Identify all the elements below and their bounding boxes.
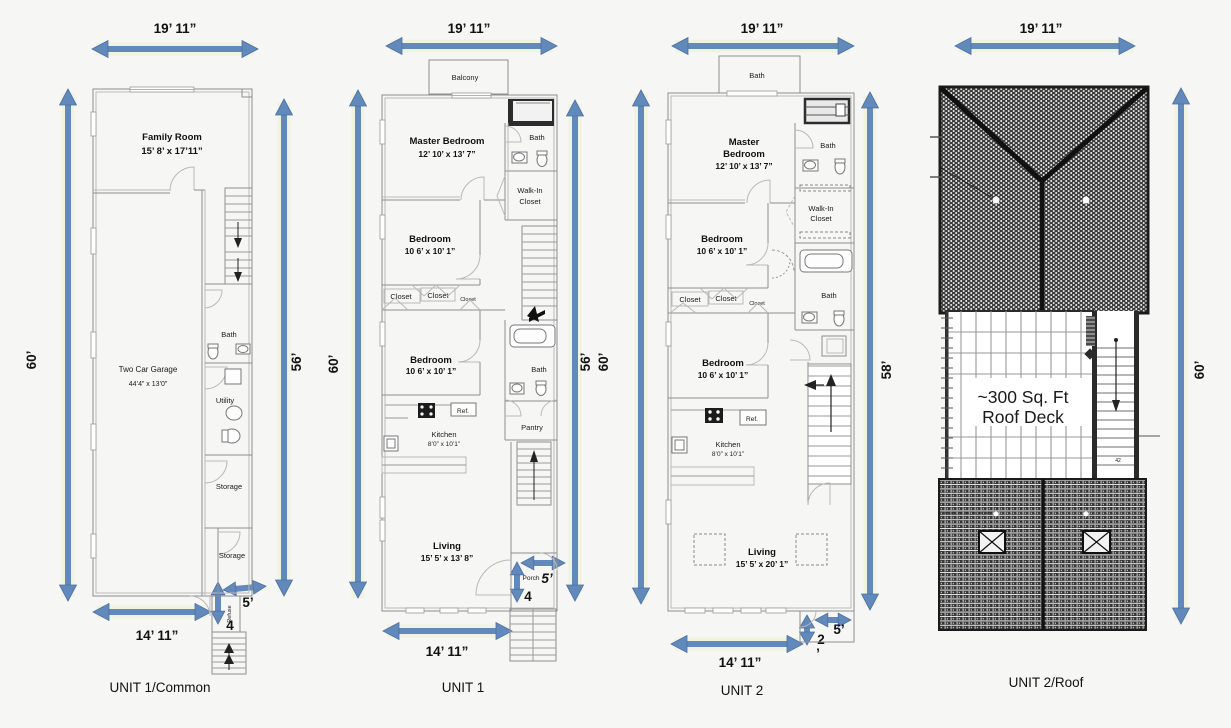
svg-text:60’: 60’ (596, 353, 611, 372)
svg-text:12’ 10’ x 13’ 7”: 12’ 10’ x 13’ 7” (418, 149, 475, 159)
svg-text:Bedroom: Bedroom (701, 234, 743, 245)
svg-text:5’: 5’ (242, 595, 253, 610)
svg-text:58’: 58’ (879, 361, 894, 380)
svg-text:Closet: Closet (427, 291, 449, 300)
svg-text:Living: Living (433, 541, 461, 552)
svg-text:Kitchen: Kitchen (715, 440, 740, 449)
svg-text:10 6’ x 10’ 1”: 10 6’ x 10’ 1” (697, 246, 748, 256)
svg-text:Bedroom: Bedroom (410, 355, 452, 366)
svg-text:19’ 11”: 19’ 11” (448, 21, 491, 36)
svg-text:Utility: Utility (216, 396, 235, 405)
svg-text:Living: Living (748, 547, 776, 558)
svg-text:Porch: Porch (523, 575, 540, 582)
svg-text:14’ 11”: 14’ 11” (426, 644, 469, 659)
svg-text:12’ 10’ x 13’ 7”: 12’ 10’ x 13’ 7” (715, 161, 772, 171)
svg-text:4: 4 (524, 589, 532, 604)
svg-text:15’ 5’ x 13’ 8”: 15’ 5’ x 13’ 8” (421, 553, 473, 563)
svg-text:Refuse: Refuse (227, 605, 233, 622)
svg-text:2: 2 (817, 632, 825, 647)
svg-text:Storage: Storage (219, 551, 245, 560)
svg-text:19’ 11”: 19’ 11” (1020, 21, 1063, 36)
svg-text:14’ 11”: 14’ 11” (719, 655, 762, 670)
svg-text:56’: 56’ (289, 353, 304, 372)
svg-text:Bath: Bath (531, 365, 546, 374)
svg-text:UNIT 2: UNIT 2 (721, 683, 764, 698)
svg-text:44’4” x 13’0”: 44’4” x 13’0” (129, 381, 168, 388)
svg-text:8’0” x 10’1”: 8’0” x 10’1” (428, 441, 460, 448)
svg-text:Family Room: Family Room (142, 132, 202, 143)
svg-text:Bath: Bath (749, 71, 764, 80)
svg-text:Storage: Storage (216, 482, 242, 491)
svg-text:19’ 11”: 19’ 11” (741, 21, 784, 36)
svg-text:’: ’ (816, 646, 820, 661)
svg-text:Master Bedroom: Master Bedroom (410, 136, 485, 147)
svg-text:Walk-In: Walk-In (808, 204, 833, 213)
svg-text:Bath: Bath (821, 291, 836, 300)
svg-text:Balcony: Balcony (452, 73, 479, 82)
svg-text:Closet: Closet (715, 294, 737, 303)
svg-text:UNIT 1: UNIT 1 (442, 680, 485, 695)
svg-text:Closet: Closet (519, 197, 541, 206)
svg-text:56’: 56’ (578, 353, 593, 372)
svg-text:Ref.: Ref. (457, 408, 469, 415)
svg-text:5’: 5’ (541, 571, 553, 586)
svg-text:UNIT 1/Common: UNIT 1/Common (109, 680, 210, 695)
svg-text:UNIT 2/Roof: UNIT 2/Roof (1009, 675, 1084, 690)
svg-text:42: 42 (1115, 458, 1121, 464)
svg-text:60’: 60’ (1192, 361, 1207, 380)
svg-text:Bedroom: Bedroom (409, 234, 451, 245)
svg-text:Ref.: Ref. (746, 416, 758, 423)
svg-text:14’ 11”: 14’ 11” (136, 628, 179, 643)
svg-text:60’: 60’ (326, 355, 341, 374)
svg-text:15’ 8’ x 17’11”: 15’ 8’ x 17’11” (141, 146, 203, 157)
svg-text:10 6’ x 10’ 1”: 10 6’ x 10’ 1” (405, 246, 456, 256)
svg-text:10 6’ x 10’ 1”: 10 6’ x 10’ 1” (698, 370, 749, 380)
svg-text:Walk-In: Walk-In (517, 186, 542, 195)
svg-text:Master: Master (729, 137, 760, 148)
svg-text:5’: 5’ (833, 622, 844, 637)
svg-text:Pantry: Pantry (521, 423, 543, 432)
svg-text:Bath: Bath (221, 330, 236, 339)
svg-text:60’: 60’ (24, 351, 39, 370)
svg-text:Bedroom: Bedroom (723, 149, 765, 160)
svg-text:Kitchen: Kitchen (431, 430, 456, 439)
svg-text:19’ 11”: 19’ 11” (154, 21, 197, 36)
svg-text:Bath: Bath (529, 133, 544, 142)
svg-text:Two Car Garage: Two Car Garage (119, 365, 178, 374)
svg-text:10 6’ x 10’ 1”: 10 6’ x 10’ 1” (406, 366, 457, 376)
svg-text:~300 Sq. Ft: ~300 Sq. Ft (978, 387, 1069, 407)
svg-text:15’ 5’ x 20’ 1”: 15’ 5’ x 20’ 1” (736, 559, 788, 569)
svg-text:Closet: Closet (810, 214, 832, 223)
svg-text:8’0” x 10’1”: 8’0” x 10’1” (712, 451, 744, 458)
svg-text:Bath: Bath (820, 141, 835, 150)
svg-text:Roof Deck: Roof Deck (982, 407, 1064, 427)
svg-text:Bedroom: Bedroom (702, 358, 744, 369)
